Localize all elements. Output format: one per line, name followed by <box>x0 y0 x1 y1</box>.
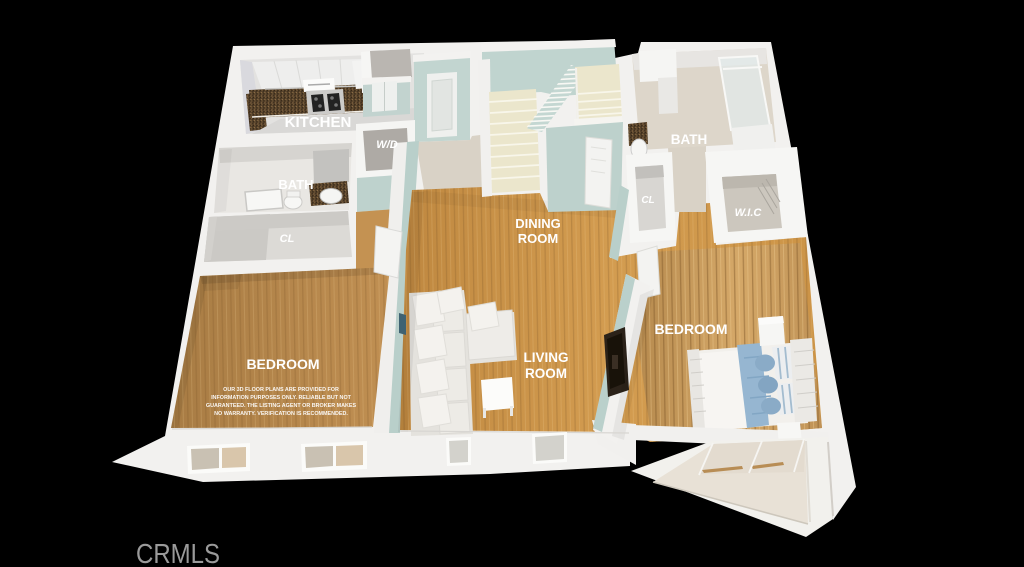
svg-text:BATH: BATH <box>671 132 708 147</box>
svg-text:BATH: BATH <box>278 177 313 192</box>
svg-text:BEDROOM: BEDROOM <box>654 321 727 337</box>
svg-text:DINING: DINING <box>515 216 561 231</box>
svg-text:W/D: W/D <box>376 139 397 151</box>
svg-text:W.I.C: W.I.C <box>735 207 763 219</box>
svg-text:BEDROOM: BEDROOM <box>246 356 319 372</box>
svg-text:LIVING: LIVING <box>523 350 568 365</box>
svg-text:CRMLS: CRMLS <box>136 538 220 567</box>
svg-text:INFORMATION PURPOSES ONLY. REL: INFORMATION PURPOSES ONLY. RELIABLE BUT … <box>211 395 352 401</box>
svg-text:CL: CL <box>641 195 654 206</box>
svg-text:ROOM: ROOM <box>525 366 567 381</box>
svg-text:KITCHEN: KITCHEN <box>285 114 352 131</box>
svg-text:OUR 3D FLOOR PLANS ARE PROVIDE: OUR 3D FLOOR PLANS ARE PROVIDED FOR <box>223 387 339 393</box>
svg-text:GUARANTEED. THE LISTING AGENT: GUARANTEED. THE LISTING AGENT OR BROKER … <box>206 403 357 409</box>
svg-text:CL: CL <box>280 233 295 245</box>
svg-text:NO WARRANTY. VERIFICATION IS R: NO WARRANTY. VERIFICATION IS RECOMMENDED… <box>214 411 348 417</box>
svg-text:ROOM: ROOM <box>518 231 558 246</box>
